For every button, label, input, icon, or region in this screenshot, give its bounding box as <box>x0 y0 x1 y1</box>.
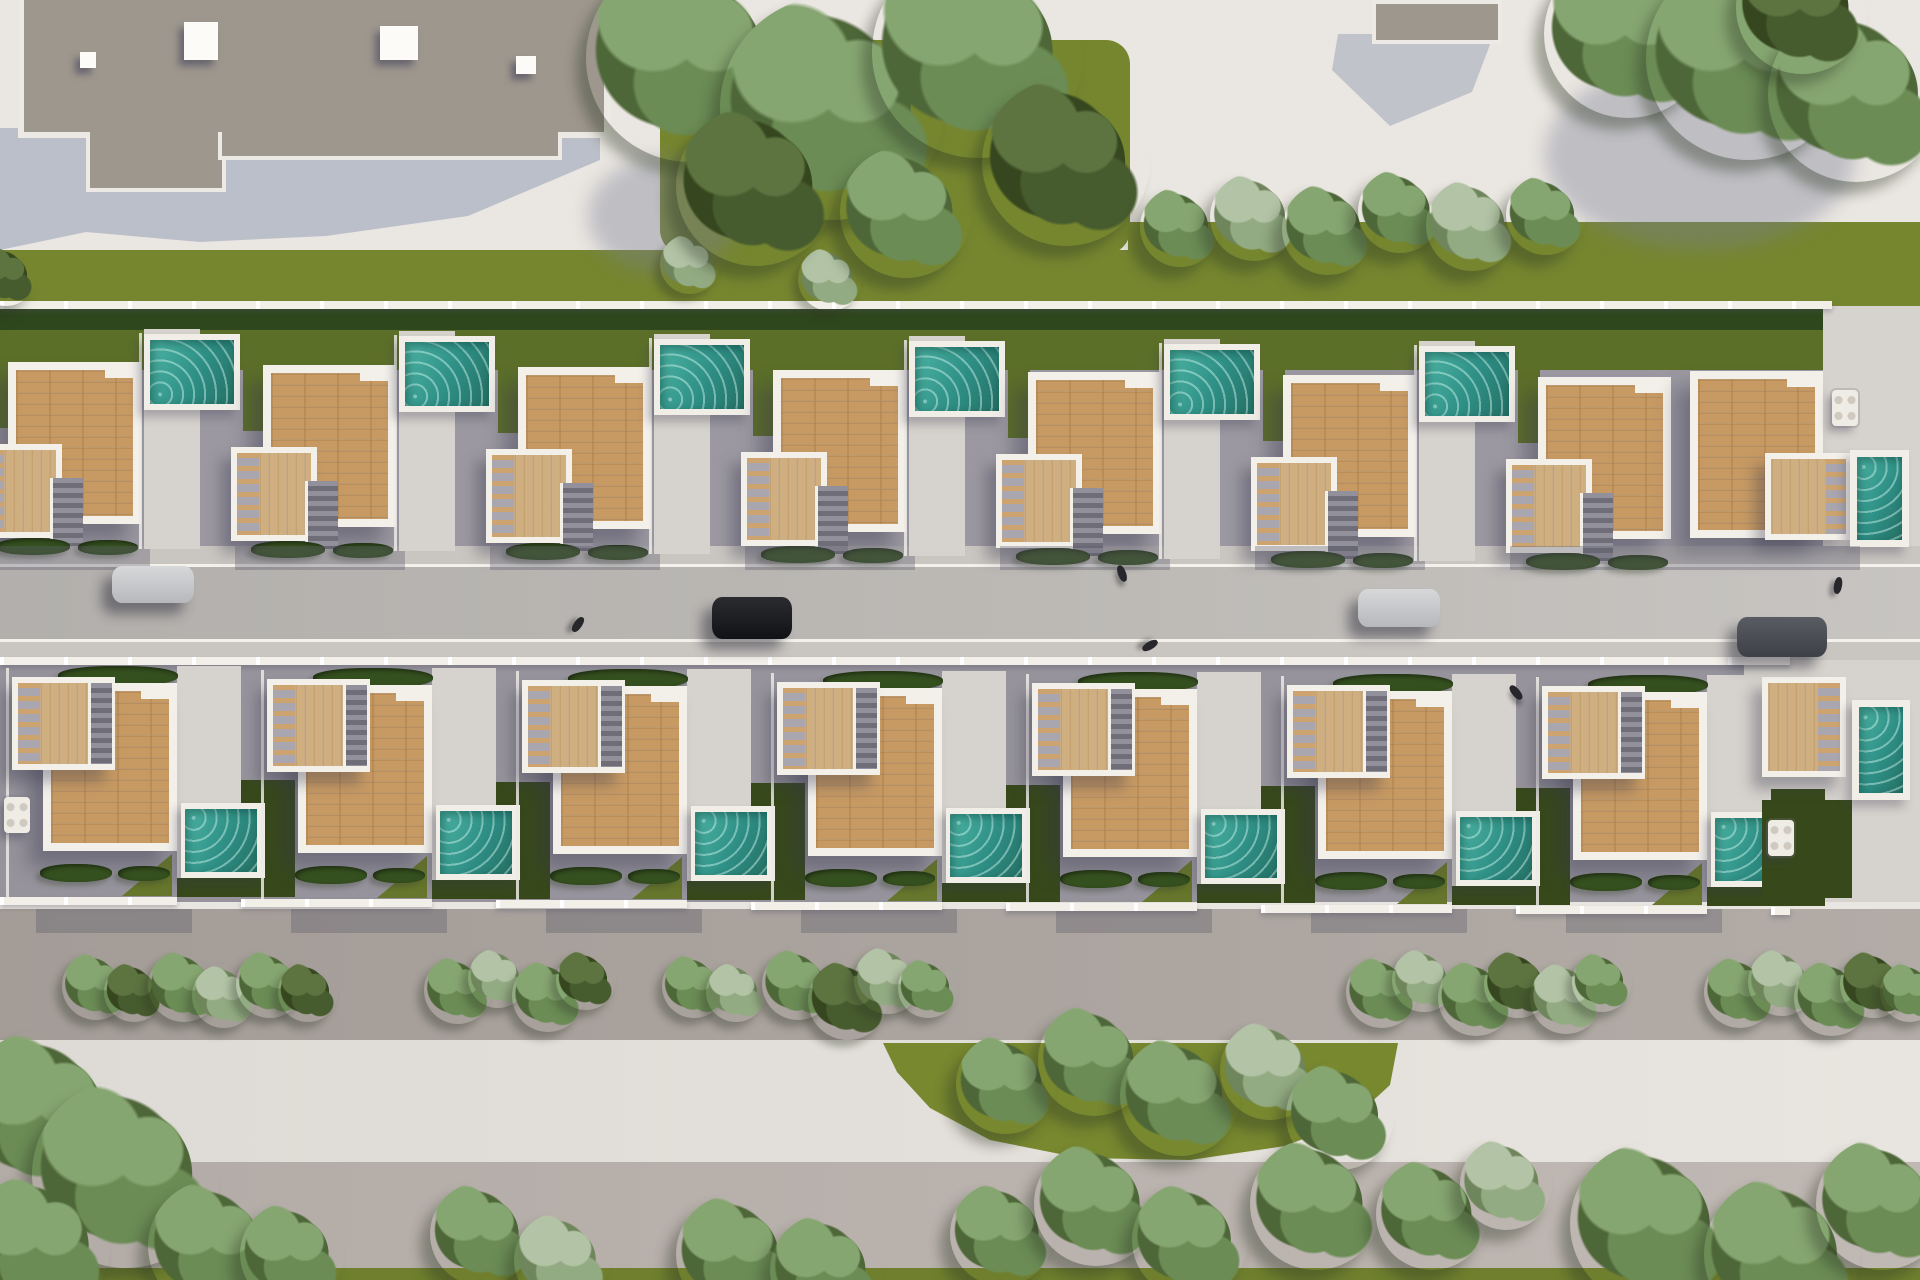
surface-hedge-back <box>0 306 1832 332</box>
pergola-trellis <box>1257 463 1279 545</box>
pool <box>185 809 257 872</box>
villa-shadow-on-walk <box>546 909 702 933</box>
surface-grass-band <box>0 250 1920 306</box>
plot-divider-wall <box>1159 343 1162 559</box>
terrace-wood <box>550 686 598 767</box>
terrace-pergola-deck <box>1765 453 1852 540</box>
stairs <box>305 481 338 549</box>
garden-strip <box>753 338 775 436</box>
plot-divider-wall <box>6 668 9 898</box>
front-fence <box>1006 903 1197 911</box>
front-hedge <box>1570 873 1642 891</box>
pergola-trellis <box>1002 460 1024 542</box>
building-roof-wing <box>218 132 562 160</box>
villa-shadow-on-walk <box>291 909 447 933</box>
villa-shadow-on-street <box>745 546 915 570</box>
terrace-wood <box>1570 692 1618 773</box>
tree <box>982 78 1150 246</box>
front-hedge <box>550 867 622 885</box>
car-silver <box>112 566 194 603</box>
villa-shadow-on-street <box>490 546 660 570</box>
garden-strip <box>1263 343 1285 441</box>
pergola-trellis <box>273 685 295 766</box>
terrace-wood <box>1279 463 1331 545</box>
pergola-trellis <box>747 458 769 540</box>
patio-table-set <box>1768 820 1794 856</box>
front-hedge <box>883 871 935 886</box>
terrace-pergola-deck <box>777 682 880 775</box>
stairs <box>1363 691 1387 772</box>
roof-vent <box>184 22 218 60</box>
roof-vent <box>80 52 96 68</box>
terrace-wood <box>805 688 853 769</box>
plot-divider-wall <box>771 673 774 903</box>
terrace-wood <box>1060 689 1108 770</box>
villa-shadow-on-street <box>1000 546 1170 570</box>
plot-divider-wall <box>1414 345 1417 561</box>
front-hedge <box>295 866 367 884</box>
terrace-wood <box>40 683 88 764</box>
front-hedge <box>373 868 425 883</box>
pool <box>1460 817 1532 880</box>
stairs <box>815 486 848 554</box>
tree <box>1506 175 1586 255</box>
bush <box>278 962 338 1022</box>
stairs <box>853 688 877 769</box>
plot-divider-wall <box>1026 674 1029 904</box>
terrace-wood <box>1024 460 1076 542</box>
front-hedge <box>40 864 112 882</box>
stairs <box>598 686 622 767</box>
tree <box>1140 187 1220 267</box>
plot-divider-wall <box>261 670 264 900</box>
garden-strip <box>1008 340 1030 438</box>
front-fence <box>241 899 432 907</box>
aerial-site-plan-rendering <box>0 0 1920 1280</box>
small-building-roof <box>1372 0 1502 44</box>
back-fence-top-row <box>0 301 1832 309</box>
front-hedge <box>1648 875 1700 890</box>
terrace-wood <box>295 685 343 766</box>
terrace-wood <box>1771 459 1826 534</box>
garden-strip <box>243 333 265 431</box>
pool <box>695 812 767 875</box>
pool <box>1425 352 1509 416</box>
pergola-trellis <box>492 455 514 537</box>
car-silver <box>1358 589 1440 627</box>
front-hedge <box>1060 870 1132 888</box>
terrace-wood <box>4 450 56 532</box>
pool <box>1857 457 1902 540</box>
terrace-wood <box>259 453 311 535</box>
front-hedge <box>118 866 170 881</box>
pergola-trellis <box>1512 465 1534 547</box>
surface-street <box>0 567 1920 641</box>
pool <box>660 345 744 409</box>
plot-divider-wall <box>1281 676 1284 906</box>
bush <box>556 950 616 1010</box>
plot-divider-wall <box>394 335 397 551</box>
plot-divider-wall <box>516 671 519 901</box>
pool <box>150 340 234 404</box>
pergola-trellis <box>1038 689 1060 770</box>
front-hedge <box>1138 872 1190 887</box>
front-fence <box>1771 907 1790 915</box>
plot-divider-wall <box>904 340 907 556</box>
stairs <box>343 685 367 766</box>
front-hedge <box>1315 872 1387 890</box>
garden-strip <box>1518 345 1540 443</box>
pergola-trellis <box>1826 459 1846 534</box>
tree <box>1250 1138 1382 1270</box>
front-fence <box>1516 906 1707 914</box>
roof-vent <box>380 26 418 60</box>
villa-shadow-on-walk <box>801 909 957 933</box>
villa-shadow-on-walk <box>36 909 192 933</box>
terrace-pergola-deck <box>12 677 115 770</box>
pool <box>915 347 999 411</box>
stairs <box>560 483 593 551</box>
plot-divider-wall <box>649 338 652 554</box>
terrace-pergola-deck <box>1542 686 1645 779</box>
bush <box>898 958 958 1018</box>
pool <box>1859 707 1903 793</box>
pergola-trellis <box>528 686 550 767</box>
bush <box>706 962 766 1022</box>
front-hedge <box>628 869 680 884</box>
tree <box>840 146 972 278</box>
front-fence <box>751 902 942 910</box>
terrace-wood <box>1534 465 1586 547</box>
pergola-trellis <box>237 453 259 535</box>
front-hedge <box>805 869 877 887</box>
stairs <box>1618 692 1642 773</box>
villa-shadow-on-street <box>1255 546 1425 570</box>
terrace-wood <box>514 455 566 537</box>
villa-shadow-on-street <box>1510 546 1680 570</box>
patio-table-set <box>1832 390 1858 426</box>
tree <box>676 106 836 266</box>
villa-shadow-on-walk <box>1056 909 1212 933</box>
pool <box>405 342 489 406</box>
front-hedge <box>1393 874 1445 889</box>
back-fence-bottom-row <box>0 657 1790 665</box>
pool <box>950 814 1022 877</box>
terrace-pergola-deck <box>522 680 625 773</box>
terrace-wood <box>1768 683 1818 771</box>
tree <box>1426 179 1518 271</box>
front-fence <box>0 897 177 905</box>
terrace-pergola-deck <box>1762 677 1846 777</box>
pergola-trellis <box>1548 692 1570 773</box>
villa-shadow-on-street <box>1680 546 1860 570</box>
bush <box>1572 952 1632 1012</box>
plot-divider-wall <box>139 333 142 549</box>
stairs <box>1108 689 1132 770</box>
pergola-trellis <box>18 683 40 764</box>
pool <box>440 811 512 874</box>
bush <box>798 247 862 311</box>
terrace-pergola-deck <box>1032 683 1135 776</box>
pergola-trellis <box>1818 683 1840 771</box>
stairs <box>50 478 83 546</box>
pergola-trellis <box>1293 691 1315 772</box>
building-roof-wing <box>86 132 226 192</box>
garden-strip <box>498 335 520 433</box>
patio-table-set <box>4 797 30 833</box>
pool <box>1170 350 1254 414</box>
terrace-pergola-deck <box>1287 685 1390 778</box>
front-fence <box>1261 905 1452 913</box>
front-fence <box>496 900 687 908</box>
villa-shadow-on-street <box>235 546 405 570</box>
pool <box>1205 815 1277 878</box>
roof-vent <box>516 56 536 74</box>
terrace-wood <box>769 458 821 540</box>
plot-divider-wall <box>1536 677 1539 907</box>
terrace-pergola-deck <box>267 679 370 772</box>
tree <box>1460 1138 1552 1230</box>
car-gray <box>1737 617 1827 657</box>
terrace-wood <box>1315 691 1363 772</box>
stairs <box>88 683 112 764</box>
car-black <box>712 597 792 639</box>
pergola-trellis <box>783 688 805 769</box>
